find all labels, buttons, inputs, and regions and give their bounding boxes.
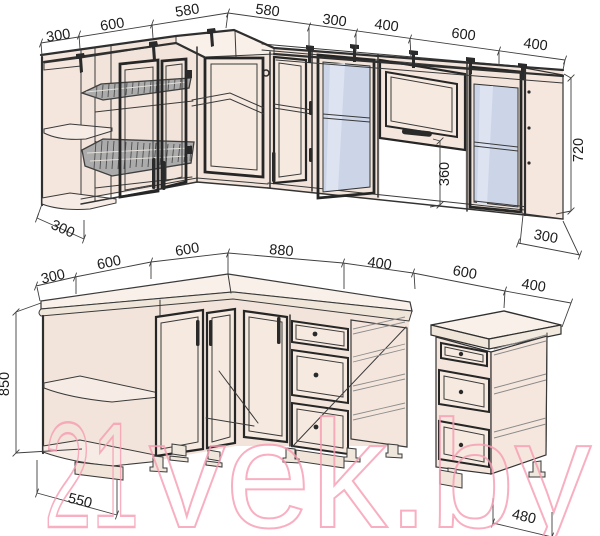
svg-text:360: 360 bbox=[437, 162, 453, 186]
svg-text:400: 400 bbox=[523, 36, 549, 55]
svg-text:400: 400 bbox=[374, 17, 400, 36]
svg-text:600: 600 bbox=[451, 26, 477, 45]
svg-text:300: 300 bbox=[322, 12, 348, 31]
svg-text:vek.by: vek.by bbox=[149, 389, 592, 536]
svg-text:720: 720 bbox=[571, 138, 587, 162]
svg-text:400: 400 bbox=[366, 254, 392, 273]
svg-text:850: 850 bbox=[0, 372, 13, 396]
svg-text:580: 580 bbox=[255, 2, 281, 21]
svg-text:21: 21 bbox=[44, 391, 139, 536]
svg-text:880: 880 bbox=[269, 242, 295, 260]
